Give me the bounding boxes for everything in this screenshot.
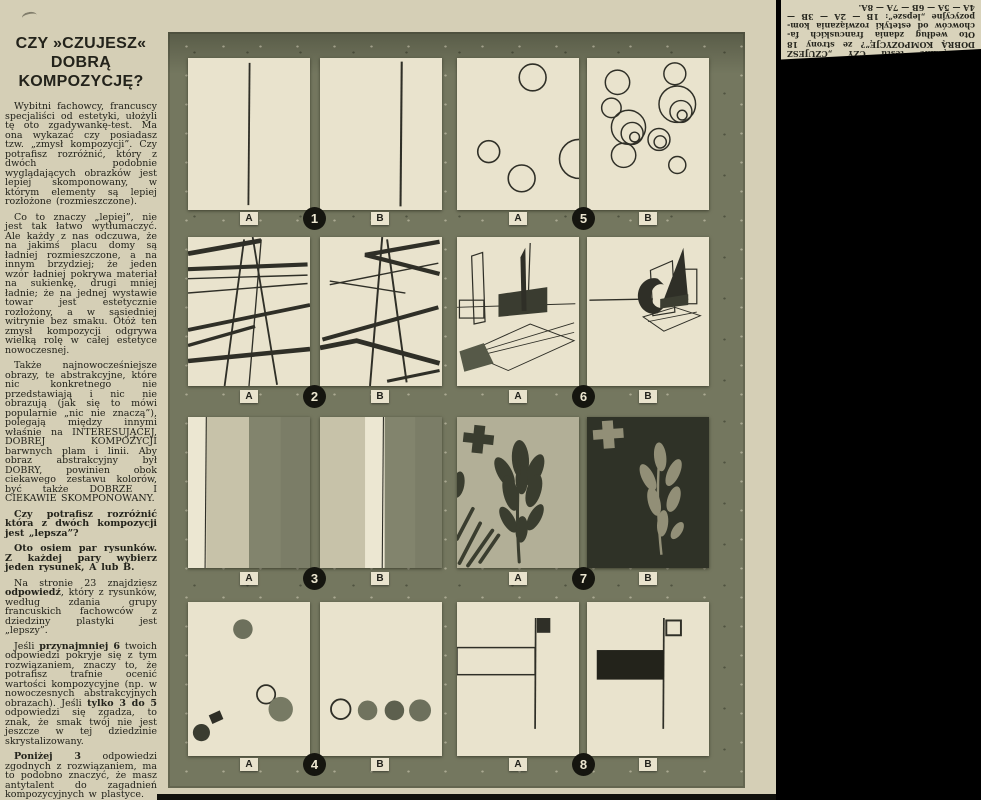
paragraph-low-score: Poniżej 3 odpowiedzi zgodnych z rozwiąza… — [5, 752, 157, 800]
panel-1b — [320, 58, 442, 210]
scanned-magazine-page: CZY »CZUJESZ« DOBRĄ KOMPOZYCJĘ? Wybitni … — [0, 0, 981, 800]
artwork-3a-stripes — [188, 417, 310, 568]
page-bottom-shadow — [157, 794, 776, 800]
pair-6-label-b: B — [639, 390, 657, 403]
paragraph-instructions: Oto osiem par rysunków. Z każdej pary wy… — [5, 544, 157, 573]
paragraph-abstract-art: Także najnowocześniejsze obrazy, te abst… — [5, 361, 157, 504]
pair-5-label-b: B — [639, 212, 657, 225]
panel-8b — [587, 602, 709, 756]
artwork-5a-sparse-circles — [457, 58, 579, 210]
panel-4a — [188, 602, 310, 756]
pair-7-number-badge: 7 — [572, 567, 595, 590]
scan-artifact-mark — [21, 10, 38, 22]
panel-6b — [587, 237, 709, 386]
paragraph-answers-page: Na stronie 23 znajdziesz odpowiedź, któr… — [5, 579, 157, 636]
answer-line: DOBRĄ KOMPOZYCJĘ”? ze strony 18 — [787, 39, 975, 48]
artwork-2a-line-abstraction — [188, 237, 310, 386]
paragraph-question: Czy potrafisz rozróżnić która z dwóch ko… — [5, 510, 157, 539]
page-scan: CZY »CZUJESZ« DOBRĄ KOMPOZYCJĘ? Wybitni … — [0, 0, 776, 800]
answer-line: chowców od estetyki rozwiązania kom- — [787, 21, 975, 30]
artwork-4a-scattered-dots — [188, 602, 310, 756]
panel-2b — [320, 237, 442, 386]
panel-8a — [457, 602, 579, 756]
answer-line: 4A — 5A — 6B — 7A — 8A. — [787, 2, 975, 11]
artwork-4b-row-of-dots — [320, 602, 442, 756]
pair-5-labels: A 5 B — [168, 212, 745, 228]
answer-line: pozycyjne „lepsze”: 1B — 2A — 3B — — [787, 11, 975, 20]
article-column: CZY »CZUJESZ« DOBRĄ KOMPOZYCJĘ? Wybitni … — [5, 26, 157, 800]
pair-5-number-badge: 5 — [572, 207, 595, 230]
quiz-grid: A 1 B A 5 B A 2 B A 6 B A 3 B — [168, 32, 745, 788]
pair-8-number-badge: 8 — [572, 753, 595, 776]
paragraph-intro: Wybitni fachowcy, francuscy specjaliści … — [5, 102, 157, 207]
artwork-1a-vertical-line-centered — [188, 58, 310, 210]
article-title: CZY »CZUJESZ« DOBRĄ KOMPOZYCJĘ? — [7, 34, 155, 91]
panel-7b — [587, 417, 709, 568]
panel-6a — [457, 237, 579, 386]
paragraph-explanation: Co to znaczy „lepiej”, nie jest tak łatw… — [5, 213, 157, 356]
answer-clipping-text: Rozwiązanie testu CZY „CZUJESZ DOBRĄ KOM… — [781, 0, 981, 62]
panel-4b — [320, 602, 442, 756]
pair-8-label-a: A — [509, 758, 527, 771]
paragraph-scoring: Jeśli przynajmniej 6 twoich odpowiedzi p… — [5, 642, 157, 747]
pair-6-labels: A 6 B — [168, 390, 745, 406]
pair-7-labels: A 7 B — [168, 572, 745, 588]
pair-6-label-a: A — [509, 390, 527, 403]
artwork-7b-light-leaves-on-dark — [587, 417, 709, 568]
artwork-6a-perspective-sketch — [457, 237, 579, 386]
pair-7-label-a: A — [509, 572, 527, 585]
panel-5a — [457, 58, 579, 210]
artwork-3b-stripes — [320, 417, 442, 568]
panel-2a — [188, 237, 310, 386]
artwork-7a-dark-leaves-on-light — [457, 417, 579, 568]
artwork-5b-clustered-circles — [587, 58, 709, 210]
panel-5b — [587, 58, 709, 210]
artwork-8b-solid-rectangle-flag — [587, 602, 709, 756]
artwork-2b-line-abstraction — [320, 237, 442, 386]
pair-7-label-b: B — [639, 572, 657, 585]
answer-clipping: Rozwiązanie testu CZY „CZUJESZ DOBRĄ KOM… — [781, 0, 981, 62]
panel-3a — [188, 417, 310, 568]
text-segment: odpowiedzi się zgadza, to znak, że smak … — [5, 707, 157, 747]
panel-1a — [188, 58, 310, 210]
artwork-8a-outline-rectangle-flag — [457, 602, 579, 756]
pair-5-label-a: A — [509, 212, 527, 225]
panel-3b — [320, 417, 442, 568]
artwork-6b-perspective-sketch — [587, 237, 709, 386]
answer-line: Rozwiązanie testu CZY „CZUJESZ — [787, 48, 975, 57]
pair-6-number-badge: 6 — [572, 385, 595, 408]
answer-line: Oto według zdania francuskich fa- — [787, 30, 975, 39]
pair-8-label-b: B — [639, 758, 657, 771]
pair-8-labels: A 8 B — [168, 758, 745, 774]
panel-7a — [457, 417, 579, 568]
artwork-1b-vertical-line-offset — [320, 58, 442, 210]
